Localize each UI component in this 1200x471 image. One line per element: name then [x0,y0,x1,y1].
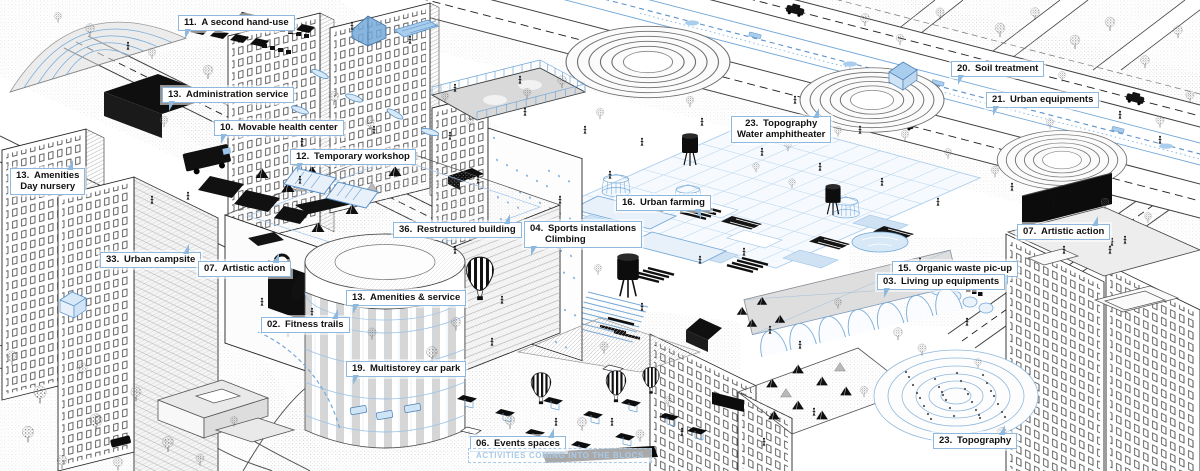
pond [852,232,908,252]
urban-masterplan-illustration: 11. A second hand-use13. Administration … [0,0,1200,471]
topography-mound [874,350,1038,442]
water-amphitheater [566,26,730,97]
footer-note: ACTIVITIES COMING INTO THE BLOCS [468,448,652,463]
car-park-cylinder [305,234,465,448]
axonometric-scene [0,0,1200,471]
water-amphitheater [800,68,944,132]
